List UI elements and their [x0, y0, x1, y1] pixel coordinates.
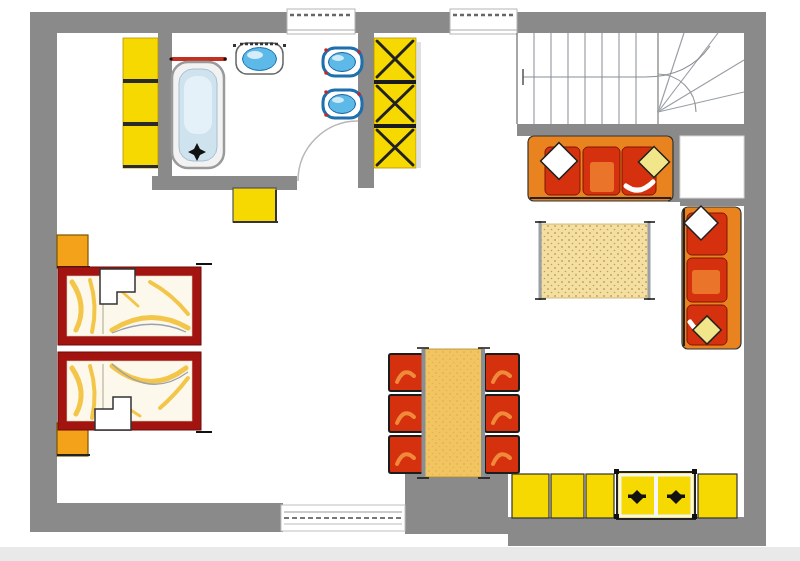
- dining-area: [389, 348, 519, 478]
- wardrobe-shelf-left: [123, 38, 158, 168]
- dining-chairs-right: [485, 354, 519, 473]
- kitchen-cabinet: [586, 474, 614, 518]
- dresser-stool-yellow: [233, 188, 278, 222]
- wall-closet-bottom-stub: [680, 198, 744, 206]
- kitchen: [512, 469, 737, 519]
- tap-dot: [324, 90, 328, 94]
- kitchen-cabinet: [551, 474, 584, 518]
- wardrobe-body: [123, 38, 158, 168]
- dining-chairs-left: [389, 354, 423, 473]
- sleeping-area: [57, 235, 212, 456]
- bathroom-door-swing: [298, 121, 358, 181]
- wall-top: [30, 12, 766, 33]
- window-top-2: [450, 9, 517, 34]
- rug-edge: [539, 221, 542, 300]
- kitchen-cabinet: [698, 474, 737, 518]
- dresser-body: [233, 188, 276, 222]
- window-top-1: [287, 9, 355, 34]
- toilet-highlight: [247, 51, 263, 59]
- wall-right: [744, 12, 766, 532]
- wash-basin-1: [323, 48, 362, 76]
- bathtub-highlight: [184, 76, 212, 134]
- wall-bottom-left: [30, 503, 283, 532]
- wall-left: [30, 12, 57, 532]
- floor-plan-svg: [0, 0, 800, 561]
- table-edge: [481, 349, 485, 477]
- toilet-bowl: [243, 48, 277, 71]
- cushion-pad: [590, 162, 614, 192]
- window-bottom: [281, 505, 405, 531]
- image-bottom-shadow: [0, 547, 800, 561]
- stair-winder-treads: [658, 33, 744, 112]
- tap-dot: [357, 50, 361, 54]
- basin-highlight: [332, 97, 344, 103]
- table-edge: [422, 349, 426, 477]
- tap-dot: [324, 113, 328, 117]
- bathtub: [169, 57, 227, 168]
- tap-dot: [357, 92, 361, 96]
- wall-bathroom-left: [158, 32, 172, 178]
- tap-dot: [324, 48, 328, 52]
- kitchen-cabinet: [512, 474, 549, 518]
- sketch-tick: [233, 44, 236, 47]
- basin-bowl: [329, 95, 356, 114]
- sofa-horizontal: [528, 136, 673, 201]
- rug: [535, 221, 655, 300]
- bathroom: [169, 43, 362, 181]
- bathtub-headrest: [170, 57, 227, 61]
- stove-unit: [614, 469, 697, 519]
- floor-plan: [0, 0, 800, 561]
- stove-divider: [654, 475, 658, 516]
- sketch-tick: [283, 44, 286, 47]
- bed-1: [58, 264, 212, 345]
- under-stair-closet: [680, 136, 744, 198]
- basin-bowl: [329, 53, 356, 72]
- wall-bottom-dining-block: [405, 474, 508, 534]
- wardrobe-shadow: [416, 42, 421, 168]
- sketch-tick: [169, 57, 172, 60]
- basin-highlight: [332, 55, 344, 61]
- sketch-tick: [223, 57, 226, 60]
- tap-dot: [324, 71, 328, 75]
- wardrobe-hall-x-pattern: [374, 38, 421, 168]
- table-texture: [424, 349, 483, 477]
- cushion-pad: [692, 270, 720, 294]
- shelf-divider: [123, 79, 158, 83]
- shelf-divider: [374, 124, 416, 128]
- staircase: [517, 33, 744, 124]
- shelf-divider: [123, 165, 158, 168]
- nightstand-body: [57, 235, 88, 268]
- toilet: [233, 43, 286, 74]
- nightstand-top: [57, 235, 90, 268]
- sofa-vertical: [682, 206, 741, 349]
- shelf-divider: [123, 122, 158, 126]
- shelf-divider: [374, 80, 416, 84]
- dining-table: [417, 348, 490, 478]
- wall-under-stairs: [517, 124, 744, 136]
- wall-bottom-right: [508, 517, 766, 546]
- stair-treads: [534, 33, 636, 124]
- bed-2: [58, 352, 212, 432]
- rug-texture: [541, 224, 649, 298]
- wash-basin-2: [323, 90, 362, 118]
- rug-edge: [648, 221, 651, 300]
